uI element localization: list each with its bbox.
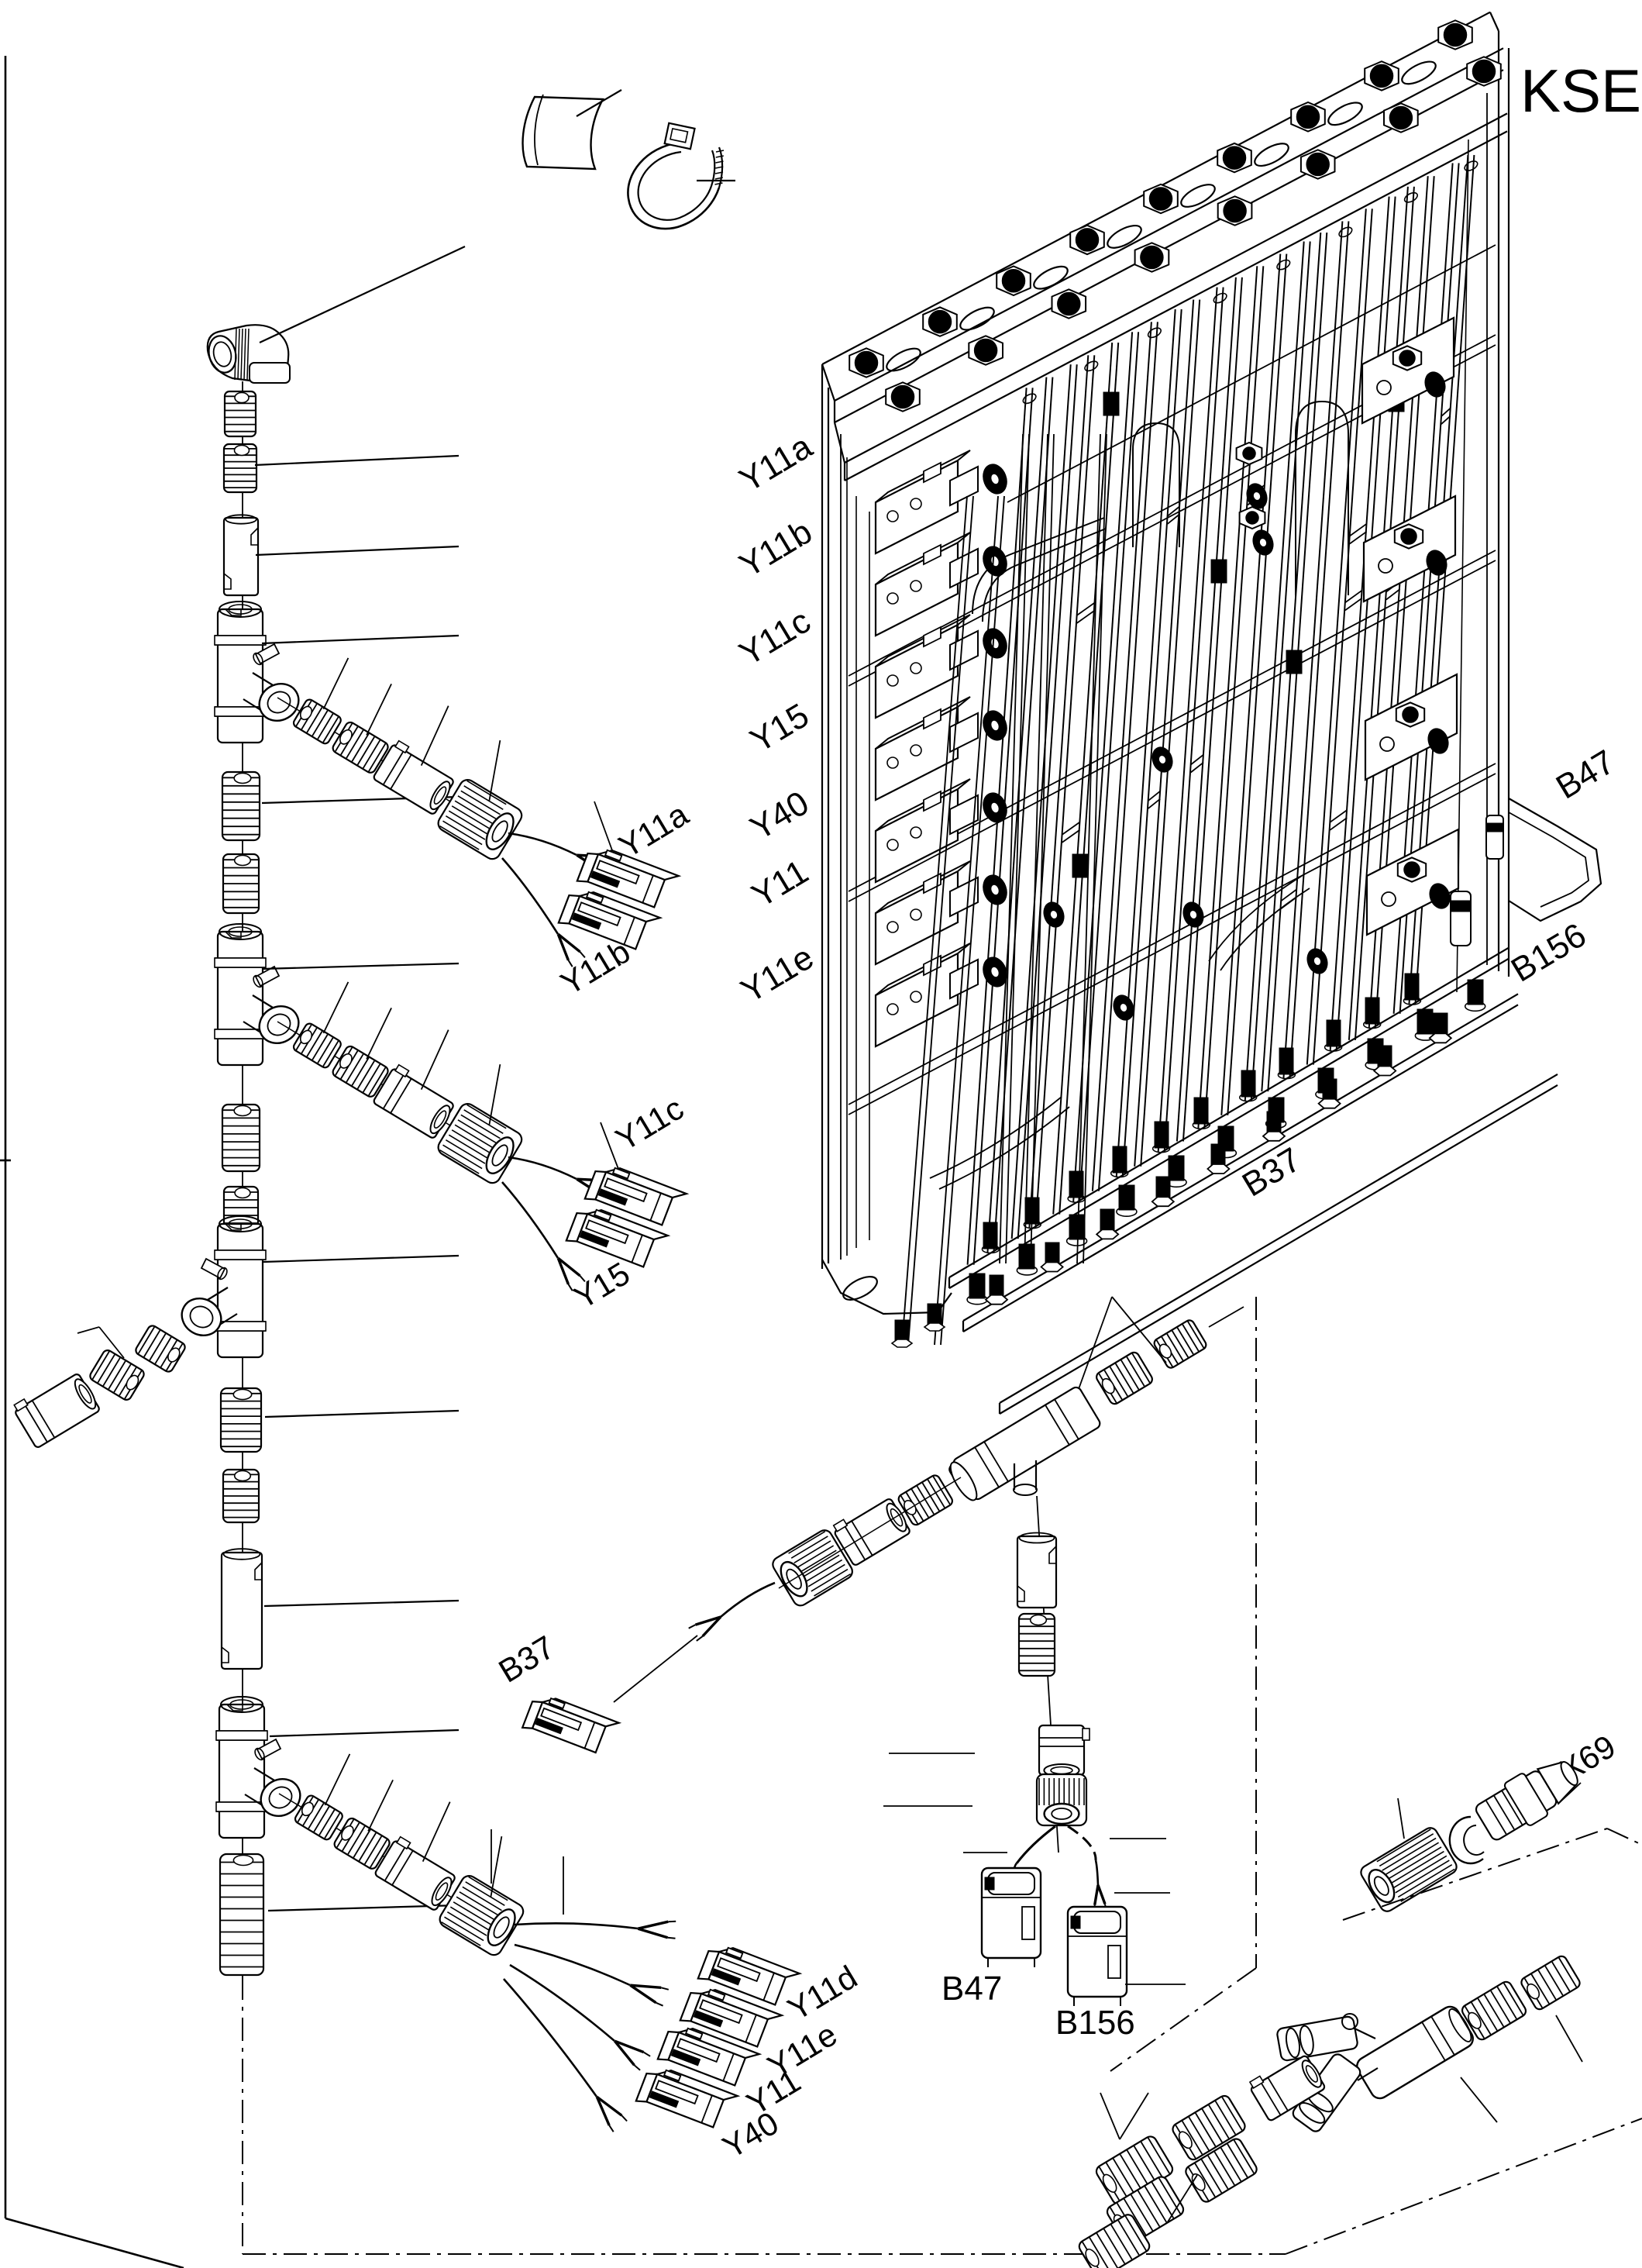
svg-text:KSE: KSE: [1520, 57, 1641, 125]
svg-text:B156: B156: [1055, 2004, 1135, 2042]
svg-text:B47: B47: [941, 1970, 1002, 2008]
